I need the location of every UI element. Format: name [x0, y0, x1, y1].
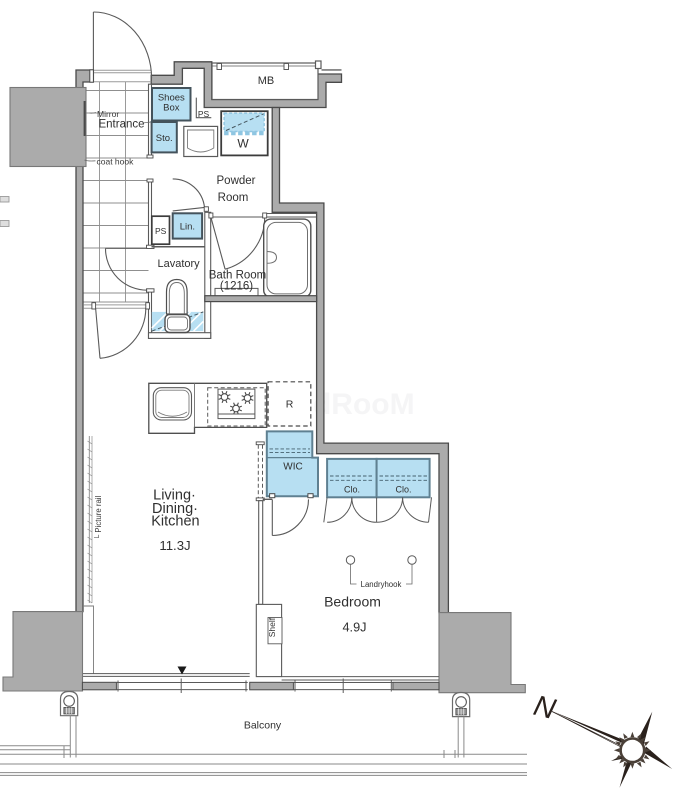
svg-text:Lin.: Lin.	[180, 222, 195, 233]
svg-text:Bedroom: Bedroom	[324, 593, 381, 609]
svg-text:Lavatory: Lavatory	[157, 258, 200, 270]
svg-text:└ Picture rail: └ Picture rail	[93, 495, 103, 540]
svg-text:Sto.: Sto.	[156, 133, 173, 144]
svg-text:Clo.: Clo.	[395, 485, 411, 495]
svg-text:MB: MB	[258, 75, 275, 87]
svg-text:Landryhook: Landryhook	[361, 580, 402, 589]
svg-text:11.3J: 11.3J	[159, 538, 190, 553]
svg-text:coat hook: coat hook	[97, 157, 135, 167]
svg-text:Box: Box	[163, 103, 180, 114]
svg-text:PS: PS	[155, 226, 167, 236]
svg-text:Kitchen: Kitchen	[151, 513, 199, 529]
svg-text:Clo.: Clo.	[344, 485, 360, 495]
svg-text:Powder: Powder	[217, 175, 256, 187]
svg-text:Entrance: Entrance	[98, 119, 144, 131]
svg-text:Shelf: Shelf	[267, 617, 277, 637]
svg-text:R: R	[286, 399, 294, 411]
svg-text:Room: Room	[218, 192, 249, 204]
svg-text:WIC: WIC	[283, 462, 302, 473]
svg-text:(1216): (1216)	[220, 281, 253, 293]
svg-text:Mirror: Mirror	[97, 109, 119, 119]
svg-text:W: W	[237, 137, 249, 151]
svg-text:Balcony: Balcony	[244, 720, 282, 732]
svg-text:4.9J: 4.9J	[343, 621, 367, 635]
svg-text:PS: PS	[198, 109, 210, 119]
